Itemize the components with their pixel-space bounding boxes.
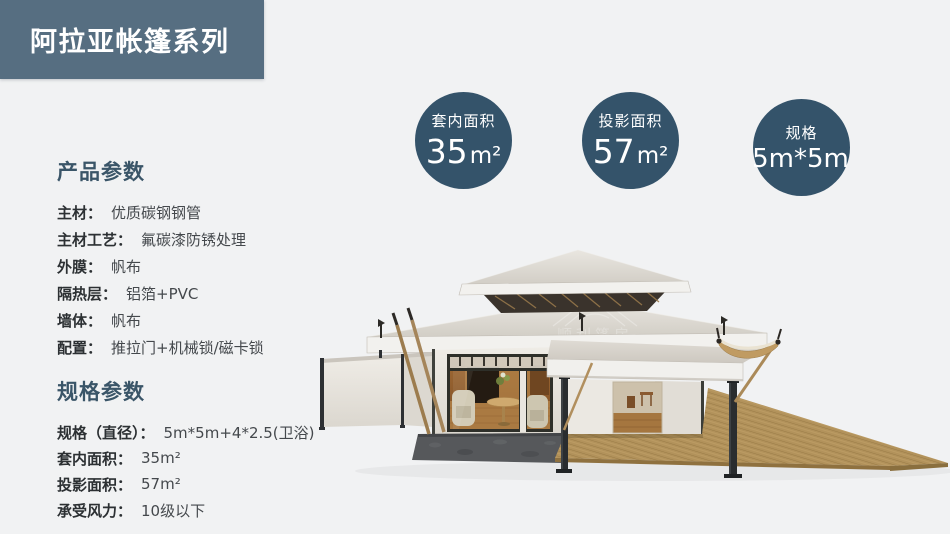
tent-photo: 顺利篷房 WELL TENT (315, 230, 950, 530)
spec-label: 墙体： (57, 310, 102, 331)
badge-unit: m² (637, 143, 669, 169)
porch-wall (567, 379, 704, 435)
tent-body (432, 347, 565, 436)
spec-value: 推拉门+机械锁/磁卡锁 (111, 337, 264, 358)
spec-value: 57m² (141, 475, 181, 493)
badge-value: 35 (426, 132, 468, 171)
badge-label: 套内面积 (431, 110, 495, 131)
spec-value: 优质碳钢钢管 (111, 202, 201, 223)
badge-size: 规格 5m*5m (753, 99, 850, 196)
spec-item: 主材： 优质碳钢钢管 (57, 199, 397, 226)
badge-unit: m² (470, 143, 502, 169)
title-banner: 阿拉亚帐篷系列 (0, 0, 264, 79)
spec-label: 规格（直径）： (57, 422, 155, 443)
panorama-window (447, 354, 553, 432)
spec-label: 隔热层： (57, 283, 117, 304)
spec-value: 10级以下 (141, 500, 205, 521)
spec-value: 氟碳漆防锈处理 (141, 229, 246, 250)
spec-label: 承受风力： (57, 500, 132, 521)
canopy-lattice (483, 292, 665, 313)
tent-top-canopy (459, 250, 691, 313)
section-heading: 产品参数 (57, 156, 397, 186)
spec-value: 5m*5m+4*2.5(卫浴) (164, 422, 315, 443)
badge-projection-area: 投影面积 57 m² (582, 92, 679, 189)
badge-interior-area: 套内面积 35 m² (415, 92, 512, 189)
spec-label: 外膜： (57, 256, 102, 277)
spec-value: 35m² (141, 449, 181, 467)
spec-label: 主材： (57, 202, 102, 223)
spec-value: 帆布 (111, 310, 141, 331)
tent-illustration: 顺利篷房 WELL TENT (315, 230, 950, 530)
spec-value: 铝箔+PVC (126, 283, 198, 304)
stone-base (412, 433, 563, 463)
porch-doorway (613, 382, 662, 433)
badge-value: 57 (593, 132, 635, 171)
badge-label: 投影面积 (598, 110, 662, 131)
badge-label: 规格 (785, 122, 817, 143)
spec-value: 帆布 (111, 256, 141, 277)
spec-label: 配置： (57, 337, 102, 358)
spec-label: 套内面积： (57, 448, 132, 469)
spec-label: 主材工艺： (57, 229, 132, 250)
badge-value: 5m*5m (752, 144, 849, 174)
page-title: 阿拉亚帐篷系列 (30, 20, 230, 59)
spec-label: 投影面积： (57, 474, 132, 495)
product-spec-page: 阿拉亚帐篷系列 产品参数 主材： 优质碳钢钢管 主材工艺： 氟碳漆防锈处理 外膜… (0, 0, 950, 534)
